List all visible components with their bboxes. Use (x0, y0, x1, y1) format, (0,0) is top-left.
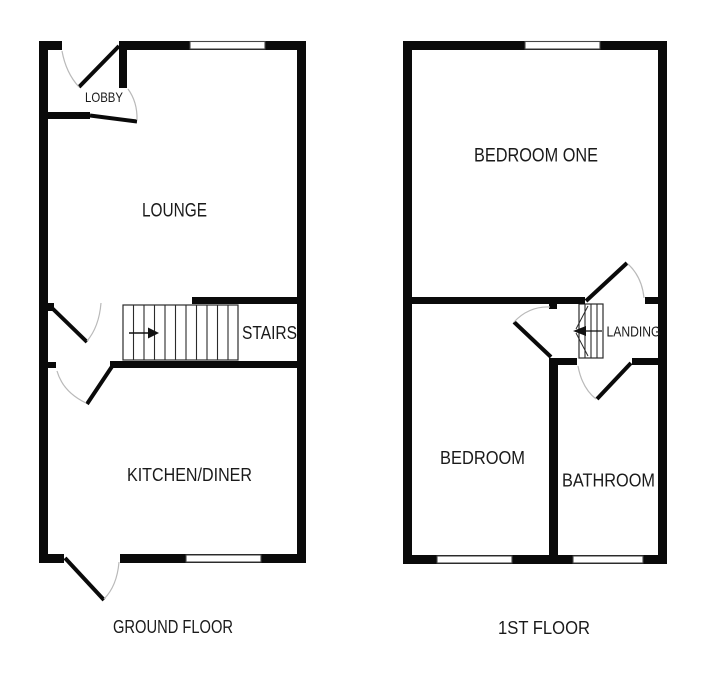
bedroom-door-jamb (549, 304, 557, 309)
kitchen-door-leaf (87, 365, 113, 404)
kitchen-window (186, 555, 261, 562)
kitchen-door-arc (57, 371, 86, 403)
bedroom-one-door-arc (628, 264, 644, 298)
bathroom-door-arc (578, 366, 596, 399)
rear-entrance-door-leaf (65, 558, 104, 600)
bedroom-door-arc (514, 307, 550, 322)
kitchen-wall (110, 361, 306, 368)
room-label-lounge: LOUNGE (142, 201, 207, 222)
bathroom-door-leaf (597, 363, 631, 399)
room-label-landing: LANDING (607, 324, 661, 341)
first-floor-plan: BEDROOM ONE LANDING BEDROOM BATHROOM 1ST… (403, 41, 667, 638)
front-door-leaf (79, 46, 119, 87)
floorplan-drawing: LOBBY LOUNGE STAIRS KITCHEN/DINER GROUND… (0, 0, 724, 675)
bedroom-bathroom-divider-wall (549, 358, 558, 564)
bathroom-wall-right (632, 358, 667, 365)
kitchen-door-jamb (47, 362, 56, 368)
bedroom-one-wall-right (645, 297, 667, 304)
lobby-partition-wall (119, 50, 127, 88)
lounge-window (190, 42, 265, 50)
bedroom-window (437, 556, 512, 563)
wall-bottom-left-stub (39, 554, 64, 563)
front-door-arc (62, 51, 79, 87)
first-floor-caption: 1ST FLOOR (498, 617, 590, 638)
wall-left (39, 41, 48, 563)
bathroom-window (573, 556, 643, 563)
room-label-bedroom-one: BEDROOM ONE (474, 145, 598, 167)
lobby-door-leaf (90, 116, 137, 122)
lobby-lower-wall (47, 112, 90, 119)
bedroom-one-door-leaf (586, 263, 627, 301)
floorplan-page: LOBBY LOUNGE STAIRS KITCHEN/DINER GROUND… (0, 0, 724, 675)
ground-floor-caption: GROUND FLOOR (113, 616, 233, 637)
rear-entrance-door-arc (104, 562, 119, 599)
lounge-passage-door-arc (87, 303, 101, 341)
room-label-stairs: STAIRS (242, 323, 297, 343)
room-label-bathroom: BATHROOM (562, 470, 655, 491)
bedroom-one-window (525, 42, 600, 50)
lobby-door-arc (128, 89, 137, 120)
lounge-passage-door-leaf (52, 308, 87, 342)
room-label-lobby: LOBBY (85, 89, 124, 105)
bathroom-wall-left (549, 358, 577, 365)
first-floor-stairs (573, 304, 603, 358)
room-label-bedroom: BEDROOM (440, 447, 525, 468)
room-label-kitchen-diner: KITCHEN/DINER (127, 464, 252, 485)
stairs-wall (192, 297, 306, 304)
bedroom-one-wall (403, 297, 585, 304)
ground-floor-plan: LOBBY LOUNGE STAIRS KITCHEN/DINER GROUND… (39, 41, 306, 637)
bedroom-door-leaf (514, 322, 551, 357)
ground-floor-stairs (123, 305, 238, 360)
